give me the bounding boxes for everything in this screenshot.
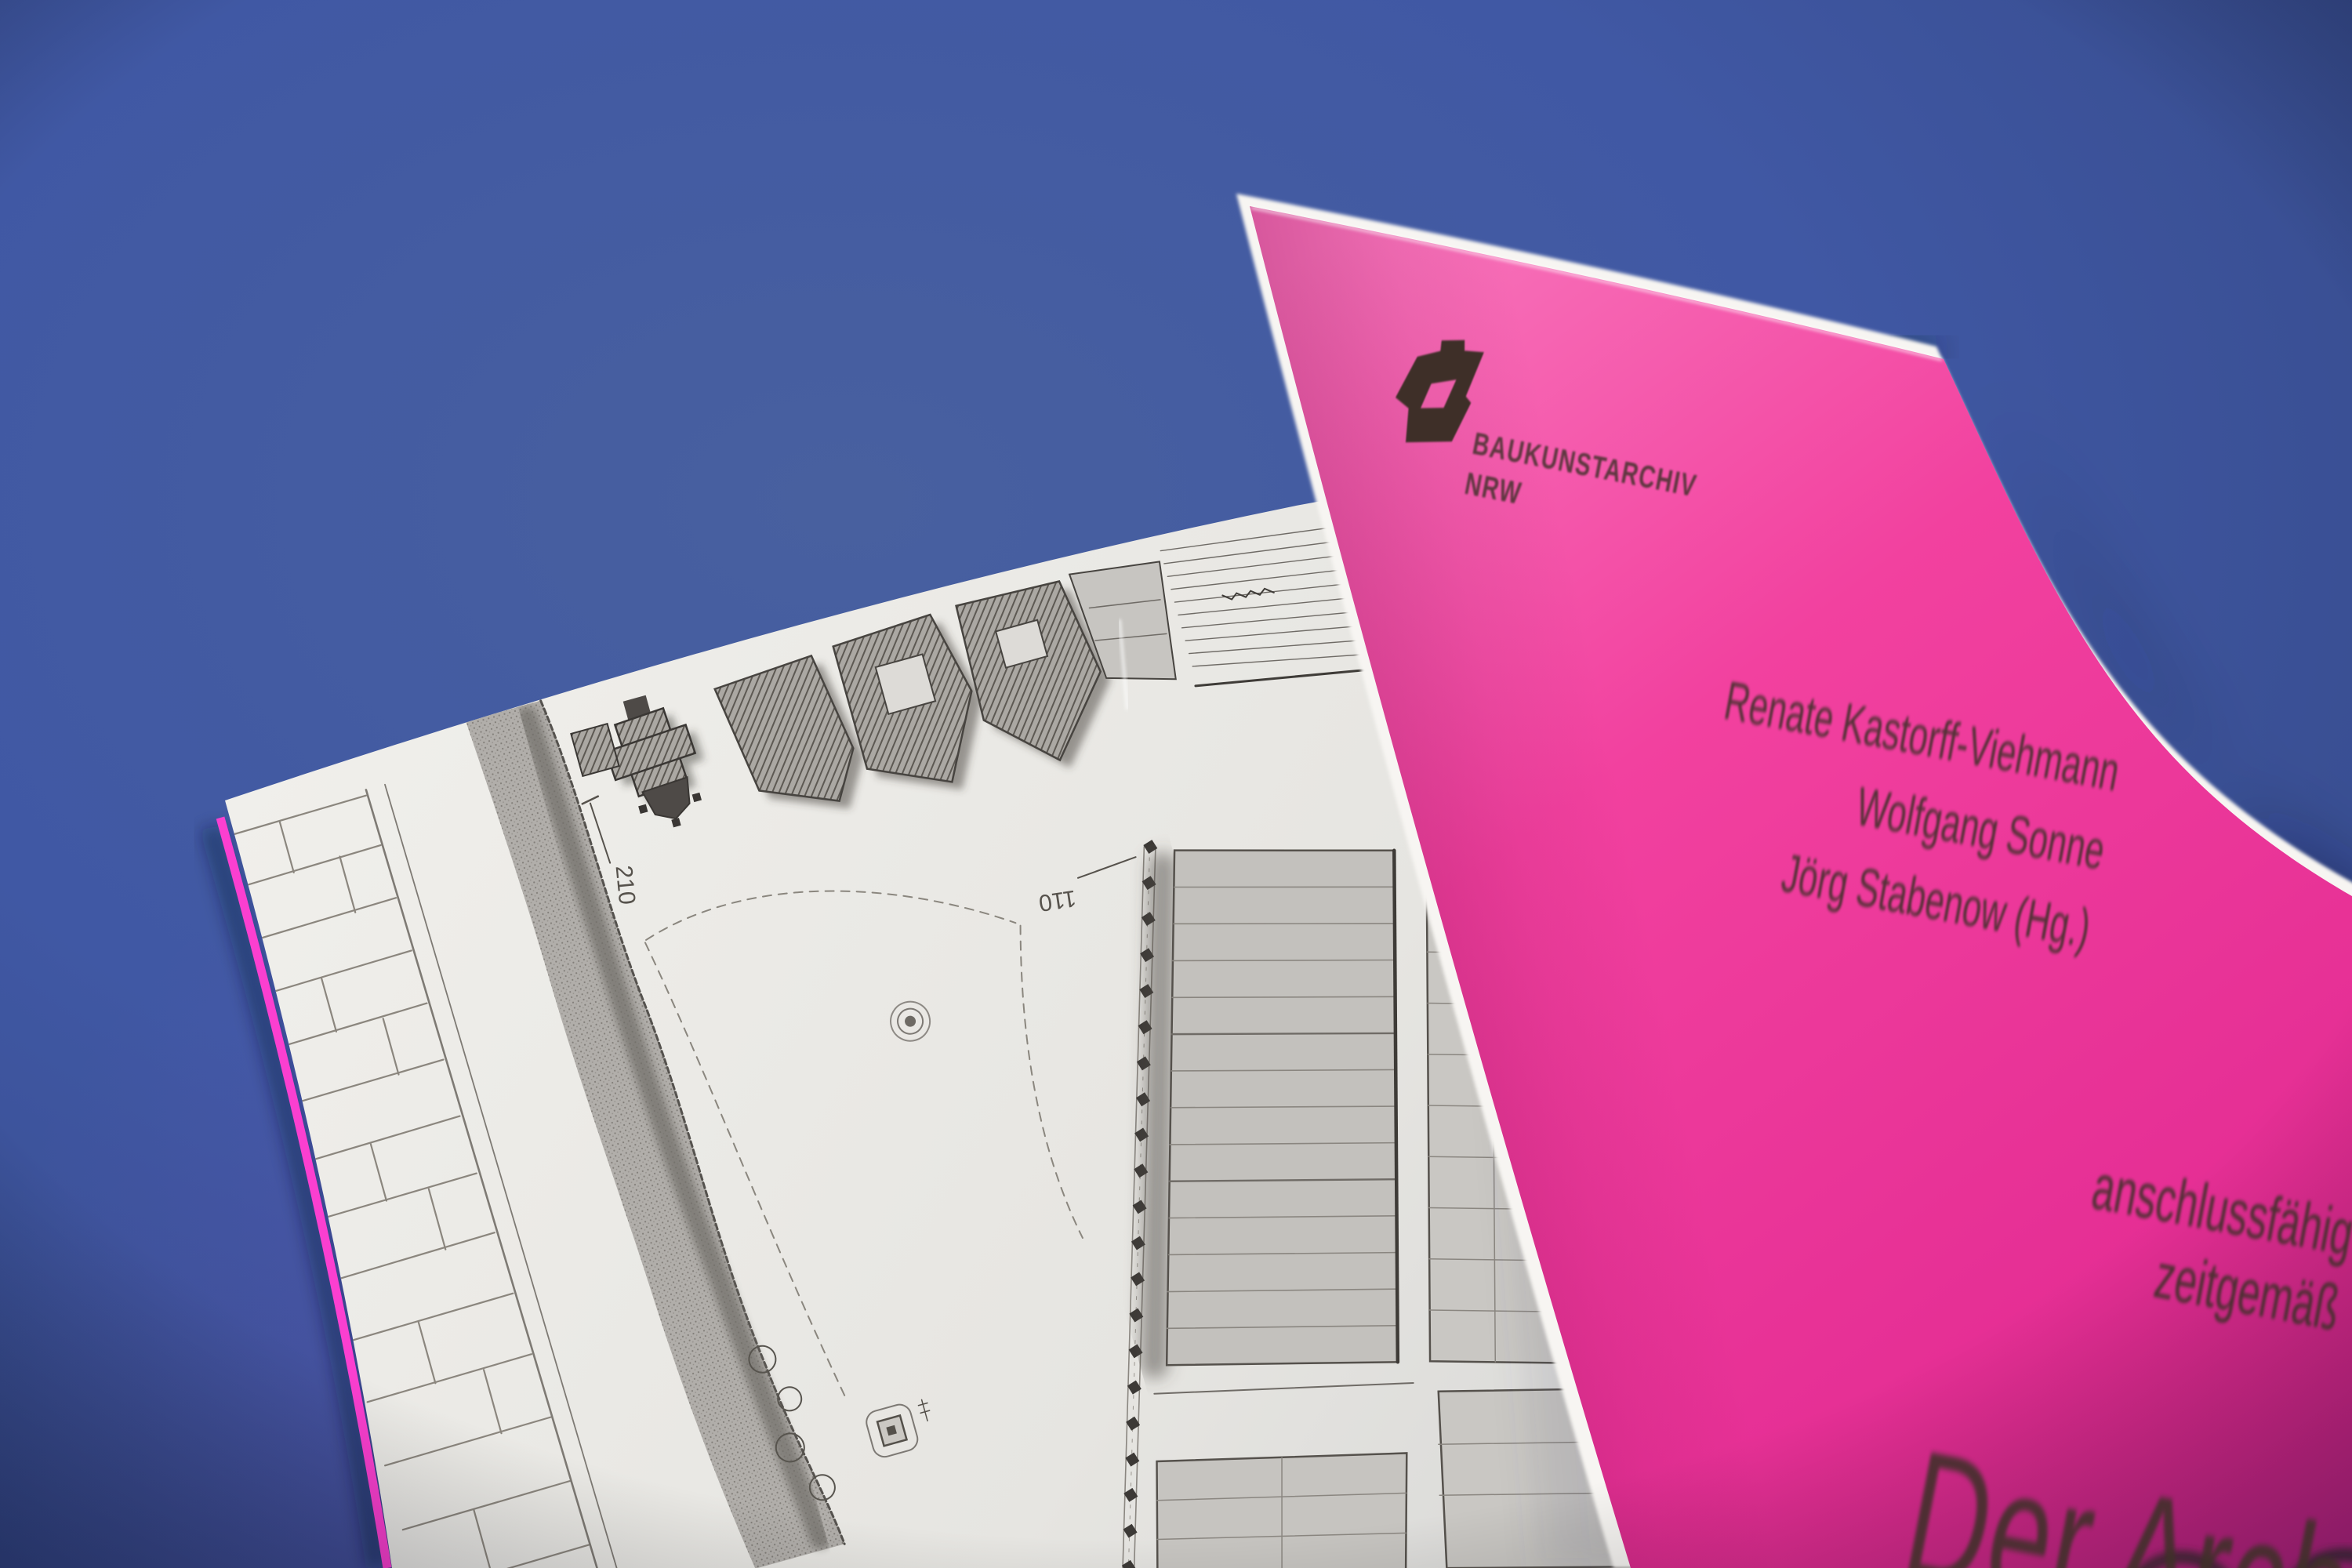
photo-of-two-book-covers: 210 — [0, 0, 2352, 1568]
